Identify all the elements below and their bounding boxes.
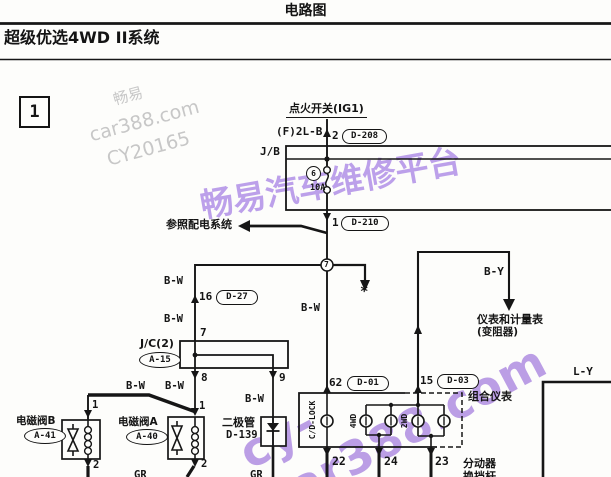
wire-label-2lb: (F)2L-B [276, 126, 322, 137]
connector-d03: D-03 [437, 374, 479, 389]
lamp-label-2wd: 2WD [401, 406, 409, 436]
ignition-switch-label: 点火开关(IG1) [286, 103, 367, 118]
pin-24: 24 [384, 456, 398, 468]
junction-block-art [286, 146, 611, 210]
wire-label-bw-6: B-W [301, 303, 320, 314]
connector-d210: D-210 [341, 216, 389, 231]
combination-meter-label: 组合仪表 [468, 391, 512, 402]
connector-a40: A-40 [126, 429, 168, 445]
wire-power-ref-branch [249, 226, 327, 233]
wire-label-by: B-Y [484, 266, 504, 277]
page-header: 电路图 [0, 4, 611, 18]
diode-label: 二极管 [222, 417, 255, 428]
solenoid-valve-a-icon [168, 417, 204, 459]
connector-d27: D-27 [216, 290, 258, 305]
pin-16: 16 [199, 291, 212, 302]
system-title: 超级优选4WD II系统 [4, 30, 160, 46]
power-ref-note: 参照配电系统 [166, 219, 232, 230]
pin-7: 7 [200, 327, 207, 338]
pin-15: 15 [420, 375, 433, 386]
joint-connector-label: J/C(2) [140, 338, 174, 349]
wiring-diagram-page: 畅易 car388.com CY20165 畅易汽车维修平台 cy-car388… [0, 0, 611, 477]
solenoid-b-pin-out: 2 [93, 460, 99, 471]
wire-label-bw-2: B-W [164, 314, 183, 325]
wire-label-bw-3: B-W [126, 381, 145, 392]
diode-code: D-139 [226, 430, 258, 441]
pin-62: 62 [329, 377, 342, 388]
wire-footnote-branch [333, 265, 365, 282]
wire-label-gr-1: GR [134, 470, 147, 477]
pin-1: 1 [332, 217, 339, 228]
connector-a15: A-15 [139, 352, 181, 368]
transfer-label-line1: 分动器 [463, 458, 496, 469]
indicator-lamp-icons [321, 415, 450, 427]
junction-number: 7 [324, 261, 329, 269]
rheostat-ref-line2: (变阻器) [477, 327, 518, 338]
wire-label-bw-5: B-W [245, 394, 264, 405]
joint-connector-art [180, 341, 288, 417]
transfer-label-line2: 换挡杆 [463, 471, 496, 477]
solenoid-b-pin-in: 1 [92, 400, 98, 411]
pin-23: 23 [435, 456, 449, 468]
wire-solenoid-a-out [187, 466, 194, 477]
solenoid-a-label: 电磁阀A [118, 417, 158, 428]
figure-number-box: 1 [19, 96, 50, 128]
rheostat-ref-line1: 仪表和计量表 [477, 314, 543, 325]
pin-9: 9 [279, 372, 286, 383]
connector-d01: D-01 [347, 376, 389, 391]
wire-thick-bw [88, 395, 196, 412]
solenoid-valve-b-icon [62, 420, 100, 459]
junction-block-label: J/B [260, 146, 280, 157]
wire-label-gr-2: GR [250, 470, 263, 477]
diode-icon [261, 417, 286, 477]
lamp-label-cd-lock: C/D-LOCK [309, 378, 317, 462]
fuse-number: 6 [306, 166, 321, 181]
connector-a41: A-41 [24, 428, 66, 444]
fuse-terminal-top [324, 167, 331, 174]
junction-dot [193, 353, 198, 358]
solenoid-a-pin-out: 2 [201, 459, 207, 470]
wire-label-bw-1: B-W [164, 276, 183, 287]
fuse-rating: 10A [310, 184, 325, 193]
pin-2: 2 [332, 130, 339, 141]
pin-22: 22 [332, 456, 346, 468]
pin-8: 8 [201, 372, 208, 383]
wire-label-bw-4: B-W [165, 381, 184, 392]
solenoid-b-label: 电磁阀B [16, 416, 56, 427]
lamp-label-4wd: 4WD [350, 406, 358, 436]
wire-label-ly: L-Y [573, 366, 593, 377]
footnote-asterisk: * [360, 285, 368, 299]
connector-d208: D-208 [342, 129, 387, 144]
fuse-element-icon [326, 174, 329, 187]
solenoid-a-pin-in: 1 [199, 401, 205, 412]
transfer-box-outline [543, 382, 611, 477]
